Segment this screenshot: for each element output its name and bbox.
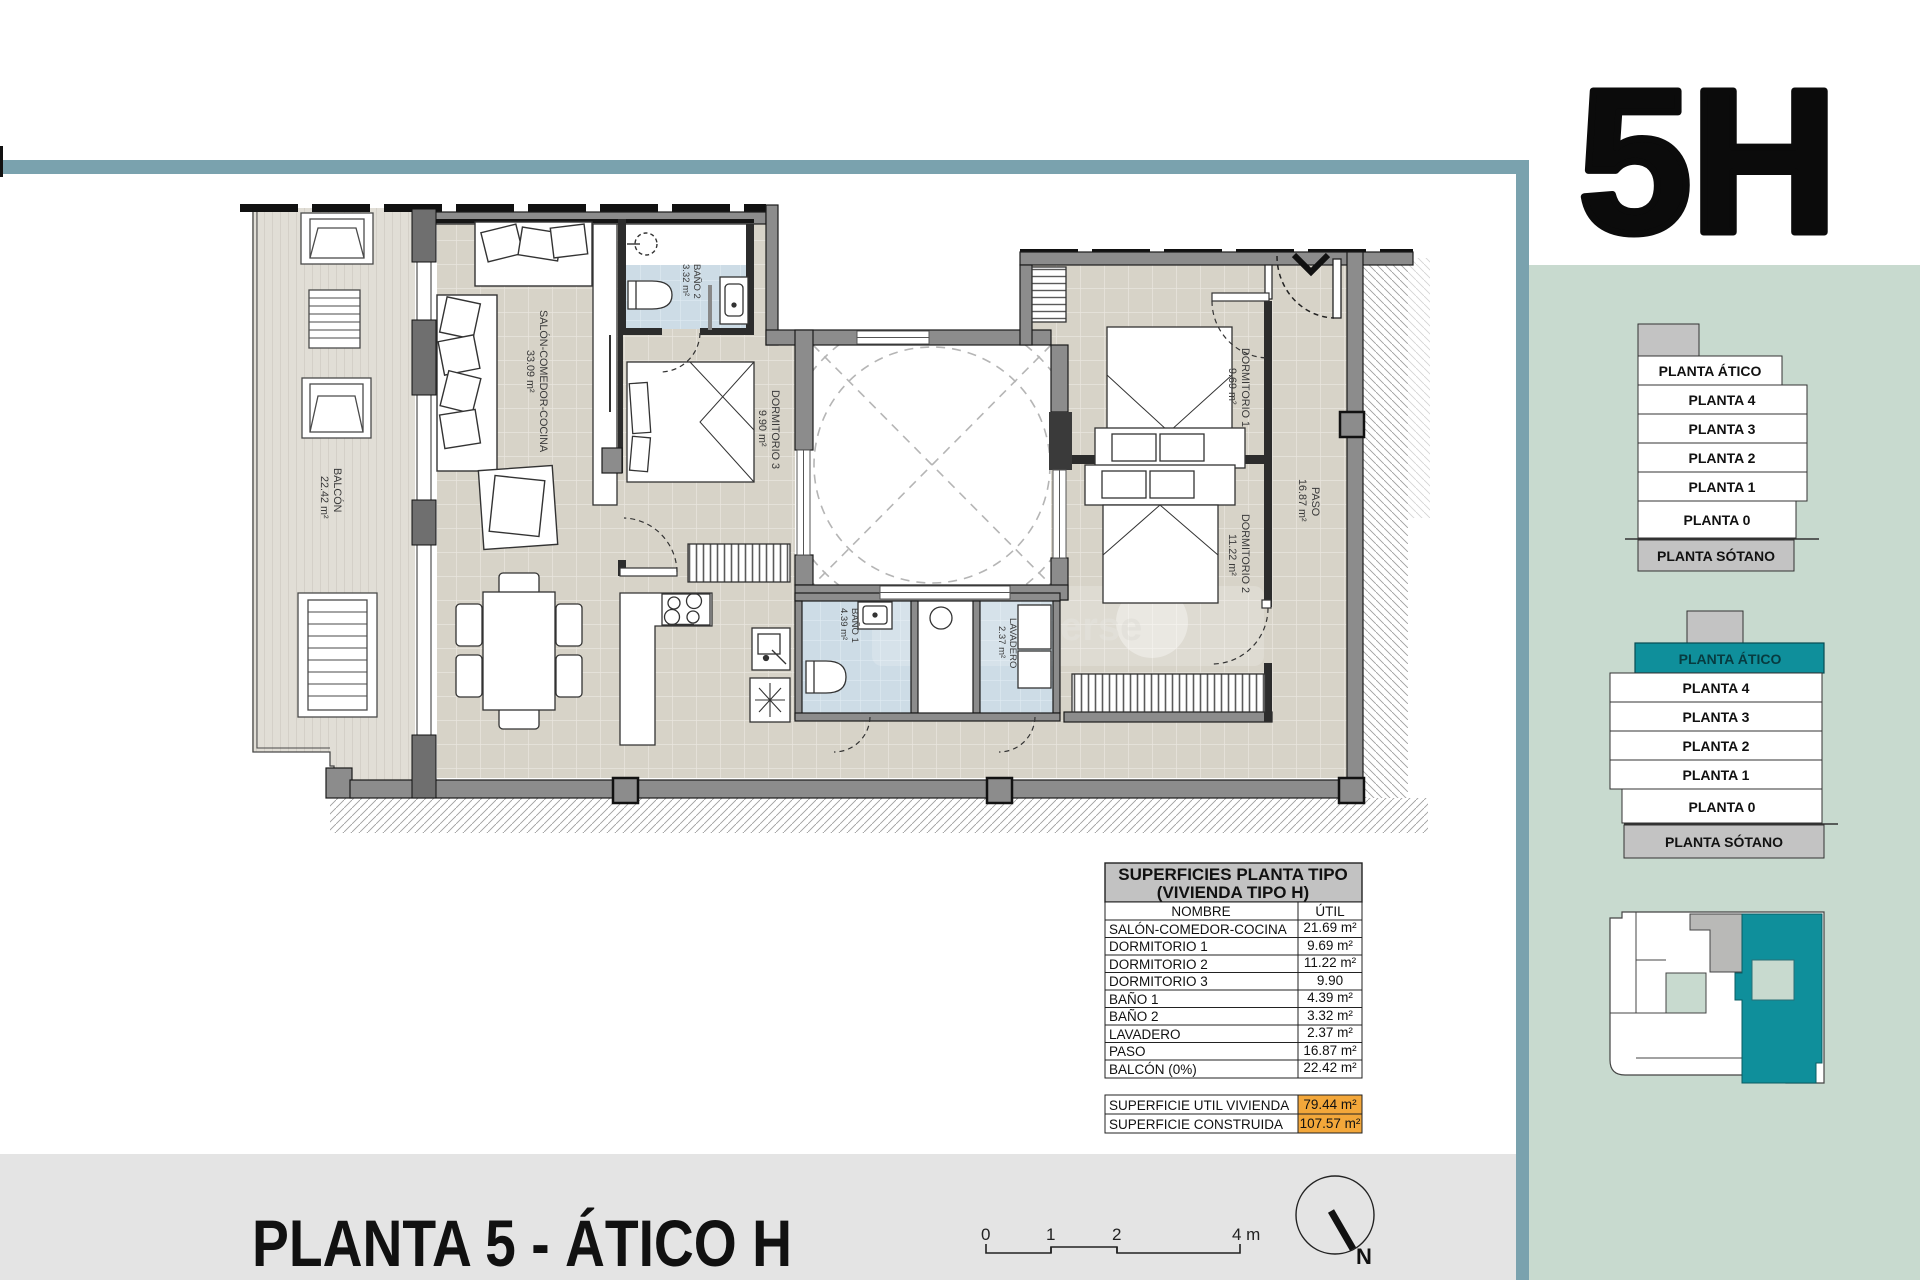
svg-text:1: 1 [1046, 1225, 1055, 1244]
svg-text:4 m: 4 m [1232, 1225, 1260, 1244]
svg-text:BAÑO 1: BAÑO 1 [1109, 992, 1159, 1007]
svg-text:PLANTA SÓTANO: PLANTA SÓTANO [1657, 547, 1775, 564]
svg-text:DORMITORIO 2: DORMITORIO 2 [1109, 957, 1208, 972]
svg-text:BAÑO 23.32 m²: BAÑO 23.32 m² [680, 264, 702, 299]
svg-text:erse: erse [1060, 605, 1142, 649]
svg-text:5H: 5H [1578, 47, 1836, 276]
svg-text:4.39 m²: 4.39 m² [1307, 990, 1353, 1005]
svg-text:BAÑO 2: BAÑO 2 [1109, 1009, 1159, 1024]
svg-text:107.57 m²: 107.57 m² [1300, 1116, 1361, 1131]
svg-text:LAVADERO: LAVADERO [1109, 1027, 1181, 1042]
svg-text:21.69 m²: 21.69 m² [1303, 920, 1357, 935]
svg-text:SALÓN-COMEDOR-COCINA: SALÓN-COMEDOR-COCINA [1109, 922, 1287, 937]
svg-text:PLANTA 5 - ÁTICO H: PLANTA 5 - ÁTICO H [252, 1206, 792, 1280]
svg-text:79.44 m²: 79.44 m² [1303, 1097, 1357, 1112]
svg-text:SUPERFICIE CONSTRUIDA: SUPERFICIE CONSTRUIDA [1109, 1117, 1283, 1132]
svg-text:NOMBRE: NOMBRE [1171, 904, 1230, 919]
svg-text:2.37 m²: 2.37 m² [1307, 1025, 1353, 1040]
svg-text:PLANTA 2: PLANTA 2 [1683, 738, 1750, 754]
svg-text:SUPERFICIES PLANTA TIPO: SUPERFICIES PLANTA TIPO [1118, 865, 1348, 884]
svg-text:PLANTA 0: PLANTA 0 [1684, 512, 1751, 528]
svg-text:PLANTA ÁTICO: PLANTA ÁTICO [1659, 363, 1762, 379]
svg-text:PASO: PASO [1109, 1044, 1146, 1059]
svg-text:3.32 m²: 3.32 m² [1307, 1008, 1353, 1023]
svg-text:16.87 m²: 16.87 m² [1303, 1043, 1357, 1058]
svg-text:DORMITORIO 1: DORMITORIO 1 [1109, 939, 1208, 954]
svg-text:(VIVIENDA TIPO H): (VIVIENDA TIPO H) [1157, 883, 1309, 902]
svg-text:PLANTA ÁTICO: PLANTA ÁTICO [1679, 651, 1782, 667]
svg-text:PLANTA 2: PLANTA 2 [1689, 450, 1756, 466]
svg-text:PLANTA 1: PLANTA 1 [1689, 479, 1756, 495]
svg-text:PLANTA SÓTANO: PLANTA SÓTANO [1665, 833, 1783, 850]
svg-text:0: 0 [981, 1225, 990, 1244]
svg-text:9.69 m²: 9.69 m² [1307, 938, 1353, 953]
svg-text:BAÑO 14.39 m²: BAÑO 14.39 m² [838, 608, 860, 643]
svg-text:DORMITORIO 3: DORMITORIO 3 [1109, 974, 1208, 989]
svg-text:11.22 m²: 11.22 m² [1304, 955, 1357, 970]
svg-text:PLANTA 1: PLANTA 1 [1683, 767, 1750, 783]
svg-text:22.42 m²: 22.42 m² [1303, 1060, 1357, 1075]
svg-text:PLANTA 4: PLANTA 4 [1689, 392, 1756, 408]
svg-text:PLANTA 3: PLANTA 3 [1683, 709, 1750, 725]
svg-text:ÚTIL: ÚTIL [1315, 904, 1345, 919]
svg-text:PLANTA 3: PLANTA 3 [1689, 421, 1756, 437]
svg-text:9.90: 9.90 [1317, 973, 1343, 988]
svg-text:SUPERFICIE UTIL VIVIENDA: SUPERFICIE UTIL VIVIENDA [1109, 1098, 1289, 1113]
svg-text:2: 2 [1112, 1225, 1121, 1244]
svg-text:N: N [1356, 1244, 1372, 1269]
svg-text:PLANTA 0: PLANTA 0 [1689, 799, 1756, 815]
svg-text:BALCÓN (0%): BALCÓN (0%) [1109, 1062, 1197, 1077]
svg-text:PLANTA 4: PLANTA 4 [1683, 680, 1750, 696]
